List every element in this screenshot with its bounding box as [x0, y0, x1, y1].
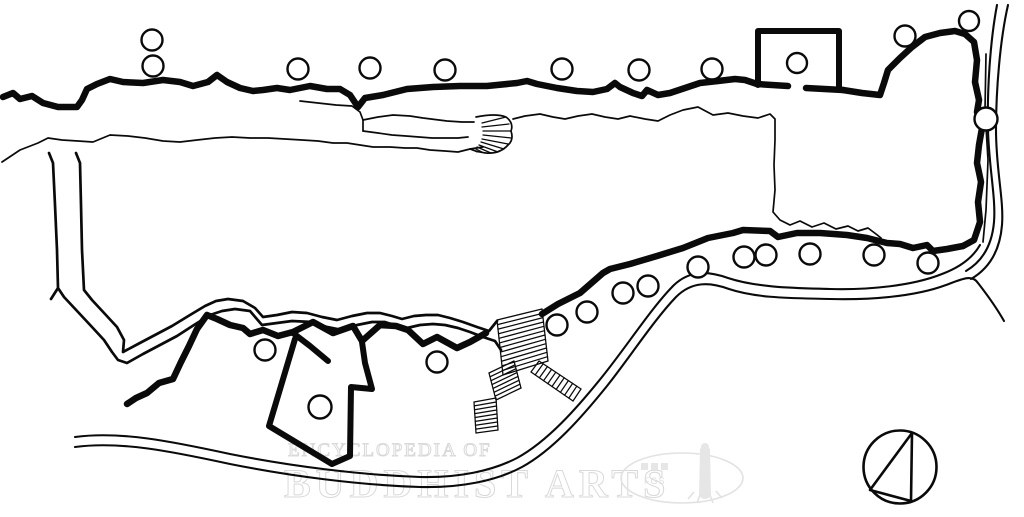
tree-circle — [288, 59, 309, 80]
stair-tread-line — [497, 309, 542, 320]
tree-circle — [577, 302, 598, 323]
tree-circle — [864, 245, 885, 266]
tree-circle — [638, 276, 659, 297]
tree-circles — [142, 11, 998, 419]
logo-glyph-box — [651, 463, 658, 470]
lake-north-shore-line — [2, 135, 483, 162]
tree-circle — [959, 11, 979, 31]
stair-tread-line — [475, 414, 497, 418]
walkway-top-line — [300, 101, 474, 122]
northeast-wall — [843, 31, 982, 246]
building-door-jamb — [293, 333, 328, 361]
walkway-bottom-line — [363, 131, 468, 138]
tree-circle — [756, 245, 777, 266]
logo-flame-icon — [701, 443, 709, 451]
tree-circle — [613, 283, 634, 304]
gatehouse-door-left-wall — [757, 84, 788, 86]
tree-circle — [975, 108, 998, 131]
tree-circle — [734, 247, 755, 268]
logo-figure-icon — [699, 446, 711, 499]
tree-circle — [702, 59, 723, 80]
stair-tread-line — [475, 418, 497, 421]
tree-circle — [360, 58, 381, 79]
tree-circle — [427, 352, 448, 373]
site-plan-canvas: ENCYCLOPEDIA OF BUDDHIST ARTS FGS — [0, 0, 1024, 517]
logo-text: FGS — [644, 476, 666, 486]
tree-circle — [629, 60, 650, 81]
south-wall-east — [542, 230, 963, 314]
stair-edge-line — [489, 373, 496, 400]
tree-circle — [552, 59, 573, 80]
logo-glyph-box — [641, 463, 648, 470]
stair-tread-line — [474, 402, 496, 406]
stair-tread-line — [475, 410, 497, 414]
tree-circle — [895, 26, 916, 47]
tree-circle — [688, 257, 709, 278]
compass-circle-icon — [864, 431, 937, 504]
compass — [864, 431, 937, 504]
tree-circle — [547, 315, 568, 336]
tree-circle — [255, 340, 276, 361]
gatehouse-door-right-wall — [806, 88, 843, 90]
logo-glyph-box — [661, 463, 668, 470]
stair-tread-line — [476, 430, 498, 433]
fan-stair-spoke-line — [483, 135, 511, 138]
stair-edge-line — [531, 372, 573, 401]
site-plan-page: ENCYCLOPEDIA OF BUDDHIST ARTS FGS — [0, 0, 1024, 517]
tree-circle — [435, 60, 456, 81]
stair-tread-line — [476, 422, 498, 425]
tree-circle — [787, 53, 807, 73]
tree-circle — [142, 30, 163, 51]
tree-circle — [918, 253, 939, 274]
south-road-upper-line — [75, 245, 980, 477]
stair-tread-line — [476, 426, 498, 429]
fan-stair-spoke-line — [482, 117, 506, 123]
fan-stair-spoke-line — [482, 124, 509, 127]
wall-side-line — [983, 54, 988, 242]
compass-triangle-icon — [870, 433, 912, 501]
tree-circle — [800, 244, 821, 265]
stair-tread-line — [474, 398, 496, 402]
tree-circle — [143, 56, 164, 77]
tree-circle — [309, 396, 332, 419]
stair-tread-line — [475, 406, 497, 410]
lake-east-shore-line — [513, 107, 881, 238]
